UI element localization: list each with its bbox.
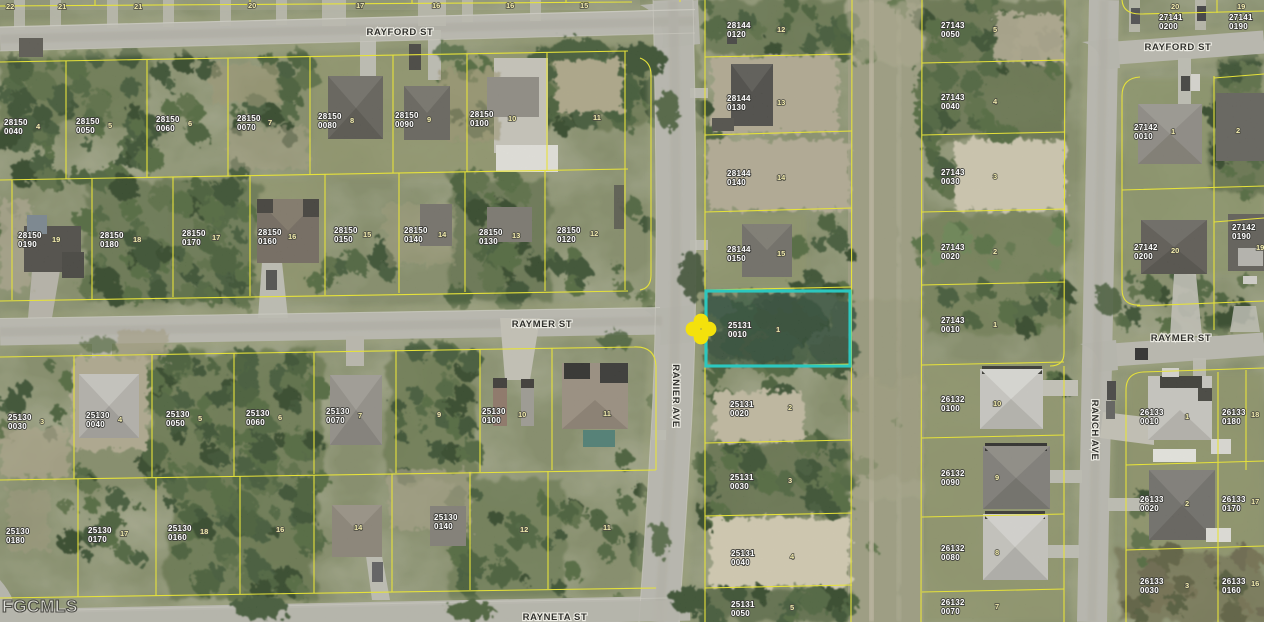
svg-text:3: 3 — [1185, 581, 1189, 590]
svg-text:RAYFORD ST: RAYFORD ST — [367, 27, 434, 38]
svg-text:17: 17 — [120, 529, 128, 538]
svg-text:13: 13 — [777, 98, 785, 107]
svg-text:10: 10 — [518, 410, 526, 419]
svg-text:8: 8 — [350, 116, 354, 125]
svg-text:16: 16 — [506, 1, 514, 10]
svg-text:19: 19 — [1256, 243, 1264, 252]
svg-text:10: 10 — [508, 114, 516, 123]
svg-text:14: 14 — [354, 523, 363, 532]
svg-text:1: 1 — [1171, 127, 1175, 136]
svg-text:17: 17 — [356, 1, 364, 10]
svg-text:7: 7 — [358, 411, 362, 420]
svg-text:3: 3 — [40, 417, 44, 426]
svg-text:10: 10 — [993, 399, 1001, 408]
svg-text:12: 12 — [777, 25, 785, 34]
svg-text:12: 12 — [590, 229, 598, 238]
svg-text:21: 21 — [134, 2, 142, 11]
svg-text:20: 20 — [248, 1, 256, 10]
svg-text:2: 2 — [993, 247, 997, 256]
svg-text:17: 17 — [212, 233, 220, 242]
svg-text:5: 5 — [993, 25, 997, 34]
svg-text:1: 1 — [993, 320, 997, 329]
svg-text:FGCMLS: FGCMLS — [2, 596, 78, 616]
svg-text:16: 16 — [432, 1, 440, 10]
svg-text:8: 8 — [995, 548, 999, 557]
svg-text:15: 15 — [580, 1, 588, 10]
svg-text:15: 15 — [777, 249, 785, 258]
svg-text:RAYFORD ST: RAYFORD ST — [1145, 42, 1212, 53]
svg-text:16: 16 — [1251, 579, 1259, 588]
svg-text:2: 2 — [1185, 499, 1189, 508]
svg-text:RAYMER ST: RAYMER ST — [1151, 333, 1211, 344]
svg-text:1: 1 — [1185, 412, 1189, 421]
svg-text:11: 11 — [603, 409, 611, 418]
svg-text:19: 19 — [52, 235, 60, 244]
svg-text:RAYMER ST: RAYMER ST — [512, 319, 572, 330]
svg-text:14: 14 — [777, 173, 786, 182]
svg-text:20: 20 — [1171, 2, 1179, 11]
svg-text:18: 18 — [200, 527, 208, 536]
svg-text:3: 3 — [993, 172, 997, 181]
svg-text:3: 3 — [788, 476, 792, 485]
svg-text:5: 5 — [790, 603, 794, 612]
svg-text:2: 2 — [1236, 126, 1240, 135]
svg-text:16: 16 — [288, 232, 296, 241]
svg-text:11: 11 — [603, 523, 611, 532]
svg-text:15: 15 — [363, 230, 371, 239]
svg-text:14: 14 — [438, 230, 447, 239]
svg-text:6: 6 — [278, 413, 282, 422]
svg-text:20: 20 — [1171, 246, 1179, 255]
svg-text:13: 13 — [512, 231, 520, 240]
svg-text:19: 19 — [1237, 2, 1245, 11]
svg-text:22: 22 — [6, 2, 14, 11]
svg-text:1: 1 — [776, 325, 780, 334]
svg-text:9: 9 — [995, 473, 999, 482]
svg-text:7: 7 — [268, 118, 272, 127]
svg-text:9: 9 — [427, 115, 431, 124]
svg-text:18: 18 — [1251, 410, 1259, 419]
svg-text:5: 5 — [198, 414, 202, 423]
svg-text:12: 12 — [520, 525, 528, 534]
svg-text:RANCH AVE: RANCH AVE — [1089, 400, 1100, 461]
svg-text:21: 21 — [58, 2, 66, 11]
svg-text:18: 18 — [133, 235, 141, 244]
svg-text:RAYNETA ST: RAYNETA ST — [523, 612, 588, 622]
svg-text:RANIER AVE: RANIER AVE — [670, 364, 681, 428]
svg-text:6: 6 — [188, 119, 192, 128]
svg-text:2: 2 — [788, 403, 792, 412]
svg-text:16: 16 — [276, 525, 284, 534]
svg-text:5: 5 — [108, 121, 112, 130]
svg-text:17: 17 — [1251, 497, 1259, 506]
svg-text:7: 7 — [995, 602, 999, 611]
svg-text:11: 11 — [593, 113, 601, 122]
svg-text:9: 9 — [437, 410, 441, 419]
